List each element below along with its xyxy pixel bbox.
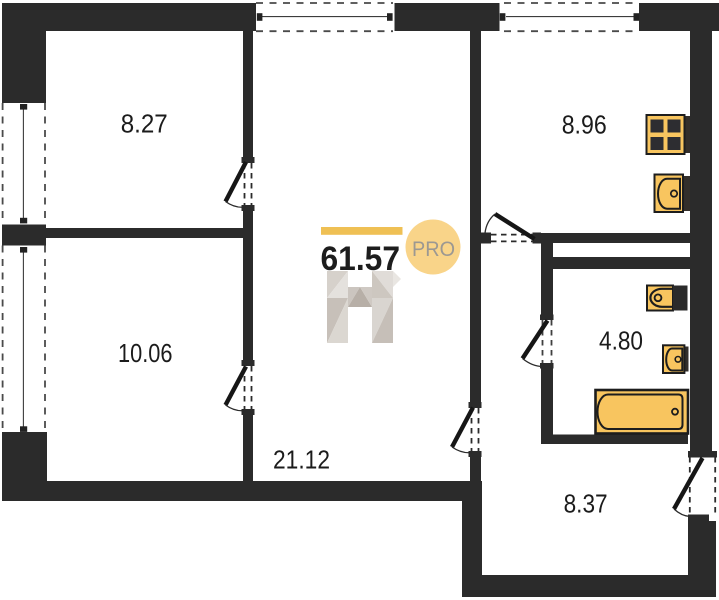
svg-text:8.27: 8.27 [121,108,168,138]
svg-text:8.96: 8.96 [562,109,607,139]
svg-text:4.80: 4.80 [599,326,643,356]
svg-text:21.12: 21.12 [273,445,330,475]
svg-text:10.06: 10.06 [118,338,173,368]
svg-text:61.57: 61.57 [321,240,401,278]
svg-text:8.37: 8.37 [564,489,608,519]
svg-text:PRO: PRO [412,237,455,261]
